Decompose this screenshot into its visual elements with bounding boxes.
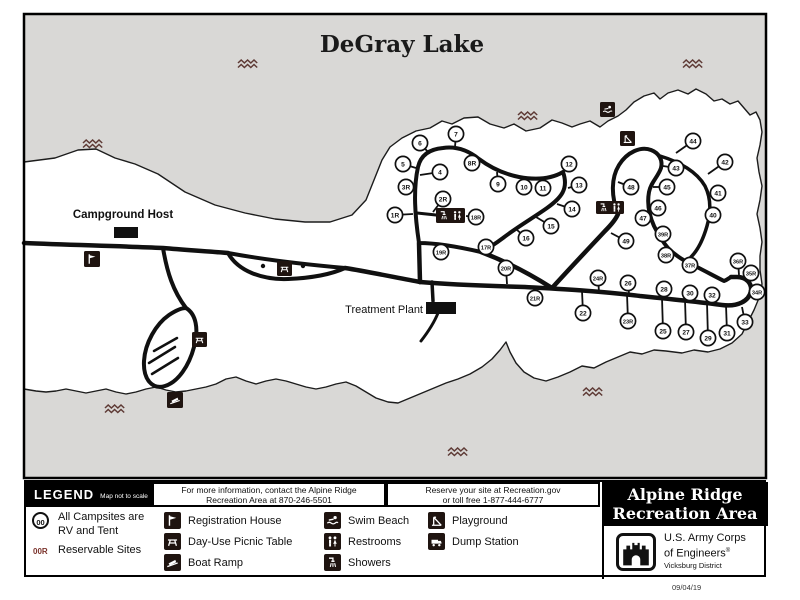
campsite-20R: 20R xyxy=(498,260,513,275)
svg-text:25: 25 xyxy=(659,328,667,335)
campsite-27: 27 xyxy=(678,324,693,339)
park-name-box: Alpine Ridge Recreation Area xyxy=(602,482,768,526)
campsite-22: 22 xyxy=(575,305,590,320)
svg-text:13: 13 xyxy=(575,182,583,189)
legend-item-registration-house: Registration House xyxy=(164,510,292,531)
legend-item-showers: Showers xyxy=(324,552,409,573)
svg-text:42: 42 xyxy=(721,159,729,166)
svg-text:41: 41 xyxy=(714,190,722,197)
campsite-46: 46 xyxy=(650,200,665,215)
svg-text:31: 31 xyxy=(723,330,731,337)
treatment-plant-building xyxy=(426,302,456,314)
campsite-38R: 38R xyxy=(658,247,673,262)
playground-icon xyxy=(620,131,635,146)
campsite-23R: 23R xyxy=(620,313,635,328)
campsite-47: 47 xyxy=(635,210,650,225)
svg-text:47: 47 xyxy=(639,215,647,222)
svg-text:10: 10 xyxy=(520,184,528,191)
svg-text:17R: 17R xyxy=(481,245,491,251)
campsite-33: 33 xyxy=(737,314,752,329)
svg-text:27: 27 xyxy=(682,329,690,336)
svg-text:34R: 34R xyxy=(752,290,762,296)
reservation-info-box: Reserve your site at Recreation.gov or t… xyxy=(386,482,600,507)
legend-column-2: Swim BeachRestroomsShowers xyxy=(324,510,409,573)
campground-map-page: 1R2R3R45678R91011121314151617R18R19R20R2… xyxy=(0,0,800,600)
campsite-36R: 36R xyxy=(730,253,745,268)
svg-text:46: 46 xyxy=(654,205,662,212)
campsite-49: 49 xyxy=(618,233,633,248)
campsite-30: 30 xyxy=(682,285,697,300)
svg-text:29: 29 xyxy=(704,335,712,342)
agency-text: U.S. Army Corps of Engineers® Vicksburg … xyxy=(664,532,746,571)
registration-house-icon xyxy=(164,512,181,529)
campsite-42: 42 xyxy=(717,154,732,169)
campsite-8R: 8R xyxy=(464,155,479,170)
svg-text:40: 40 xyxy=(709,212,717,219)
svg-text:1R: 1R xyxy=(391,212,400,219)
campsite-44: 44 xyxy=(685,133,700,148)
campsite-6: 6 xyxy=(412,135,427,150)
campsite-24R: 24R xyxy=(590,270,605,285)
campsite-48: 48 xyxy=(623,179,638,194)
legend-column-1: Registration HouseDay-Use Picnic TableBo… xyxy=(164,510,292,573)
lake-title: DeGray Lake xyxy=(320,31,484,58)
restrooms-icon xyxy=(324,533,341,550)
legend-panel: LEGEND Map not to scale For more informa… xyxy=(24,480,766,577)
boat-ramp-icon xyxy=(167,392,183,408)
svg-text:39R: 39R xyxy=(658,232,668,238)
campsite-17R: 17R xyxy=(478,239,493,254)
day-use-picnic-table-icon xyxy=(277,261,292,276)
campsite-37R: 37R xyxy=(682,257,697,272)
campsite-13: 13 xyxy=(571,177,586,192)
campsite-1R: 1R xyxy=(387,207,402,222)
svg-text:48: 48 xyxy=(627,184,635,191)
date-stamp: 09/04/19 xyxy=(672,583,701,592)
svg-text:8R: 8R xyxy=(468,160,477,167)
campsite-40: 40 xyxy=(705,207,720,222)
campsite-25: 25 xyxy=(655,323,670,338)
campsite-9: 9 xyxy=(490,176,505,191)
campsite-41: 41 xyxy=(710,185,725,200)
campsite-45: 45 xyxy=(659,179,674,194)
reservable-symbol: 00R xyxy=(33,547,48,556)
svg-text:45: 45 xyxy=(663,184,671,191)
swim-beach-icon xyxy=(600,102,615,117)
contact-info-box: For more information, contact the Alpine… xyxy=(152,482,386,507)
svg-text:21R: 21R xyxy=(530,296,540,302)
registration-house-icon xyxy=(84,251,100,267)
campsite-19R: 19R xyxy=(433,244,448,259)
campsite-7: 7 xyxy=(448,126,463,141)
svg-text:28: 28 xyxy=(660,286,668,293)
svg-text:18R: 18R xyxy=(471,215,481,221)
svg-text:44: 44 xyxy=(689,138,697,145)
boat-ramp-icon xyxy=(164,554,181,571)
svg-text:36R: 36R xyxy=(733,259,743,265)
legend-item-dump-station: Dump Station xyxy=(428,531,519,552)
campsite-symbol-icon: 00 xyxy=(32,512,49,529)
svg-text:2R: 2R xyxy=(439,196,448,203)
svg-text:12: 12 xyxy=(565,161,573,168)
svg-text:38R: 38R xyxy=(661,253,671,259)
usace-castle-logo xyxy=(616,533,656,571)
campsite-29: 29 xyxy=(700,330,715,345)
legend-item-restrooms: Restrooms xyxy=(324,531,409,552)
campsite-21R: 21R xyxy=(527,290,542,305)
svg-text:16: 16 xyxy=(522,235,530,242)
svg-text:15: 15 xyxy=(547,223,555,230)
campsite-5: 5 xyxy=(395,156,410,171)
svg-text:9: 9 xyxy=(496,181,500,188)
campsite-10: 10 xyxy=(516,179,531,194)
campsite-15: 15 xyxy=(543,218,558,233)
campsite-34R: 34R xyxy=(749,284,764,299)
svg-text:30: 30 xyxy=(686,290,694,297)
legend-column-3: PlaygroundDump Station xyxy=(428,510,519,552)
svg-text:49: 49 xyxy=(622,238,630,245)
campsite-4: 4 xyxy=(432,164,447,179)
legend-item-playground: Playground xyxy=(428,510,519,531)
campsite-2R: 2R xyxy=(435,191,450,206)
svg-text:7: 7 xyxy=(454,131,458,138)
svg-text:37R: 37R xyxy=(685,263,695,269)
legend-scale-note: Map not to scale xyxy=(100,493,148,500)
svg-text:5: 5 xyxy=(401,161,405,168)
showers-restrooms-icon xyxy=(596,201,624,214)
legend-item-day-use-picnic-table: Day-Use Picnic Table xyxy=(164,531,292,552)
campsite-16: 16 xyxy=(518,230,533,245)
legend-item-boat-ramp: Boat Ramp xyxy=(164,552,292,573)
campsite-3R: 3R xyxy=(398,179,413,194)
campground-host-label: Campground Host xyxy=(73,209,173,221)
legend-title: LEGEND xyxy=(34,487,94,502)
restrooms-showers-icon xyxy=(436,208,465,223)
showers-icon xyxy=(324,554,341,571)
campground-host-building xyxy=(114,227,138,238)
svg-text:35R: 35R xyxy=(746,271,756,277)
svg-text:26: 26 xyxy=(624,280,632,287)
svg-text:11: 11 xyxy=(540,185,547,192)
svg-text:22: 22 xyxy=(579,310,587,317)
svg-text:19R: 19R xyxy=(436,250,446,256)
picnic-table-icon xyxy=(192,332,207,347)
treatment-plant-label: Treatment Plant xyxy=(345,304,423,316)
svg-text:23R: 23R xyxy=(623,319,633,325)
campsite-28: 28 xyxy=(656,281,671,296)
campsite-35R: 35R xyxy=(743,265,758,280)
svg-text:4: 4 xyxy=(438,169,442,176)
agency-block: U.S. Army Corps of Engineers® Vicksburg … xyxy=(602,526,768,579)
campsite-26: 26 xyxy=(620,275,635,290)
svg-text:33: 33 xyxy=(741,319,749,326)
svg-text:43: 43 xyxy=(672,165,680,172)
svg-text:32: 32 xyxy=(708,292,716,299)
svg-text:6: 6 xyxy=(418,140,422,147)
svg-text:3R: 3R xyxy=(402,184,411,191)
day-use-picnic-table-icon xyxy=(164,533,181,550)
campsite-39R: 39R xyxy=(655,226,670,241)
legend-header-bar: LEGEND Map not to scale xyxy=(26,482,152,507)
svg-text:14: 14 xyxy=(568,206,576,213)
campsite-12: 12 xyxy=(561,156,576,171)
legend-item-swim-beach: Swim Beach xyxy=(324,510,409,531)
swim-beach-icon xyxy=(324,512,341,529)
campsite-14: 14 xyxy=(564,201,579,216)
campsite-32: 32 xyxy=(704,287,719,302)
campsite-11: 11 xyxy=(535,180,550,195)
campsite-31: 31 xyxy=(719,325,734,340)
playground-icon xyxy=(428,512,445,529)
dump-station-icon xyxy=(428,533,445,550)
svg-text:20R: 20R xyxy=(501,266,511,272)
campsite-43: 43 xyxy=(668,160,683,175)
svg-text:24R: 24R xyxy=(593,276,603,282)
campsite-18R: 18R xyxy=(468,209,483,224)
